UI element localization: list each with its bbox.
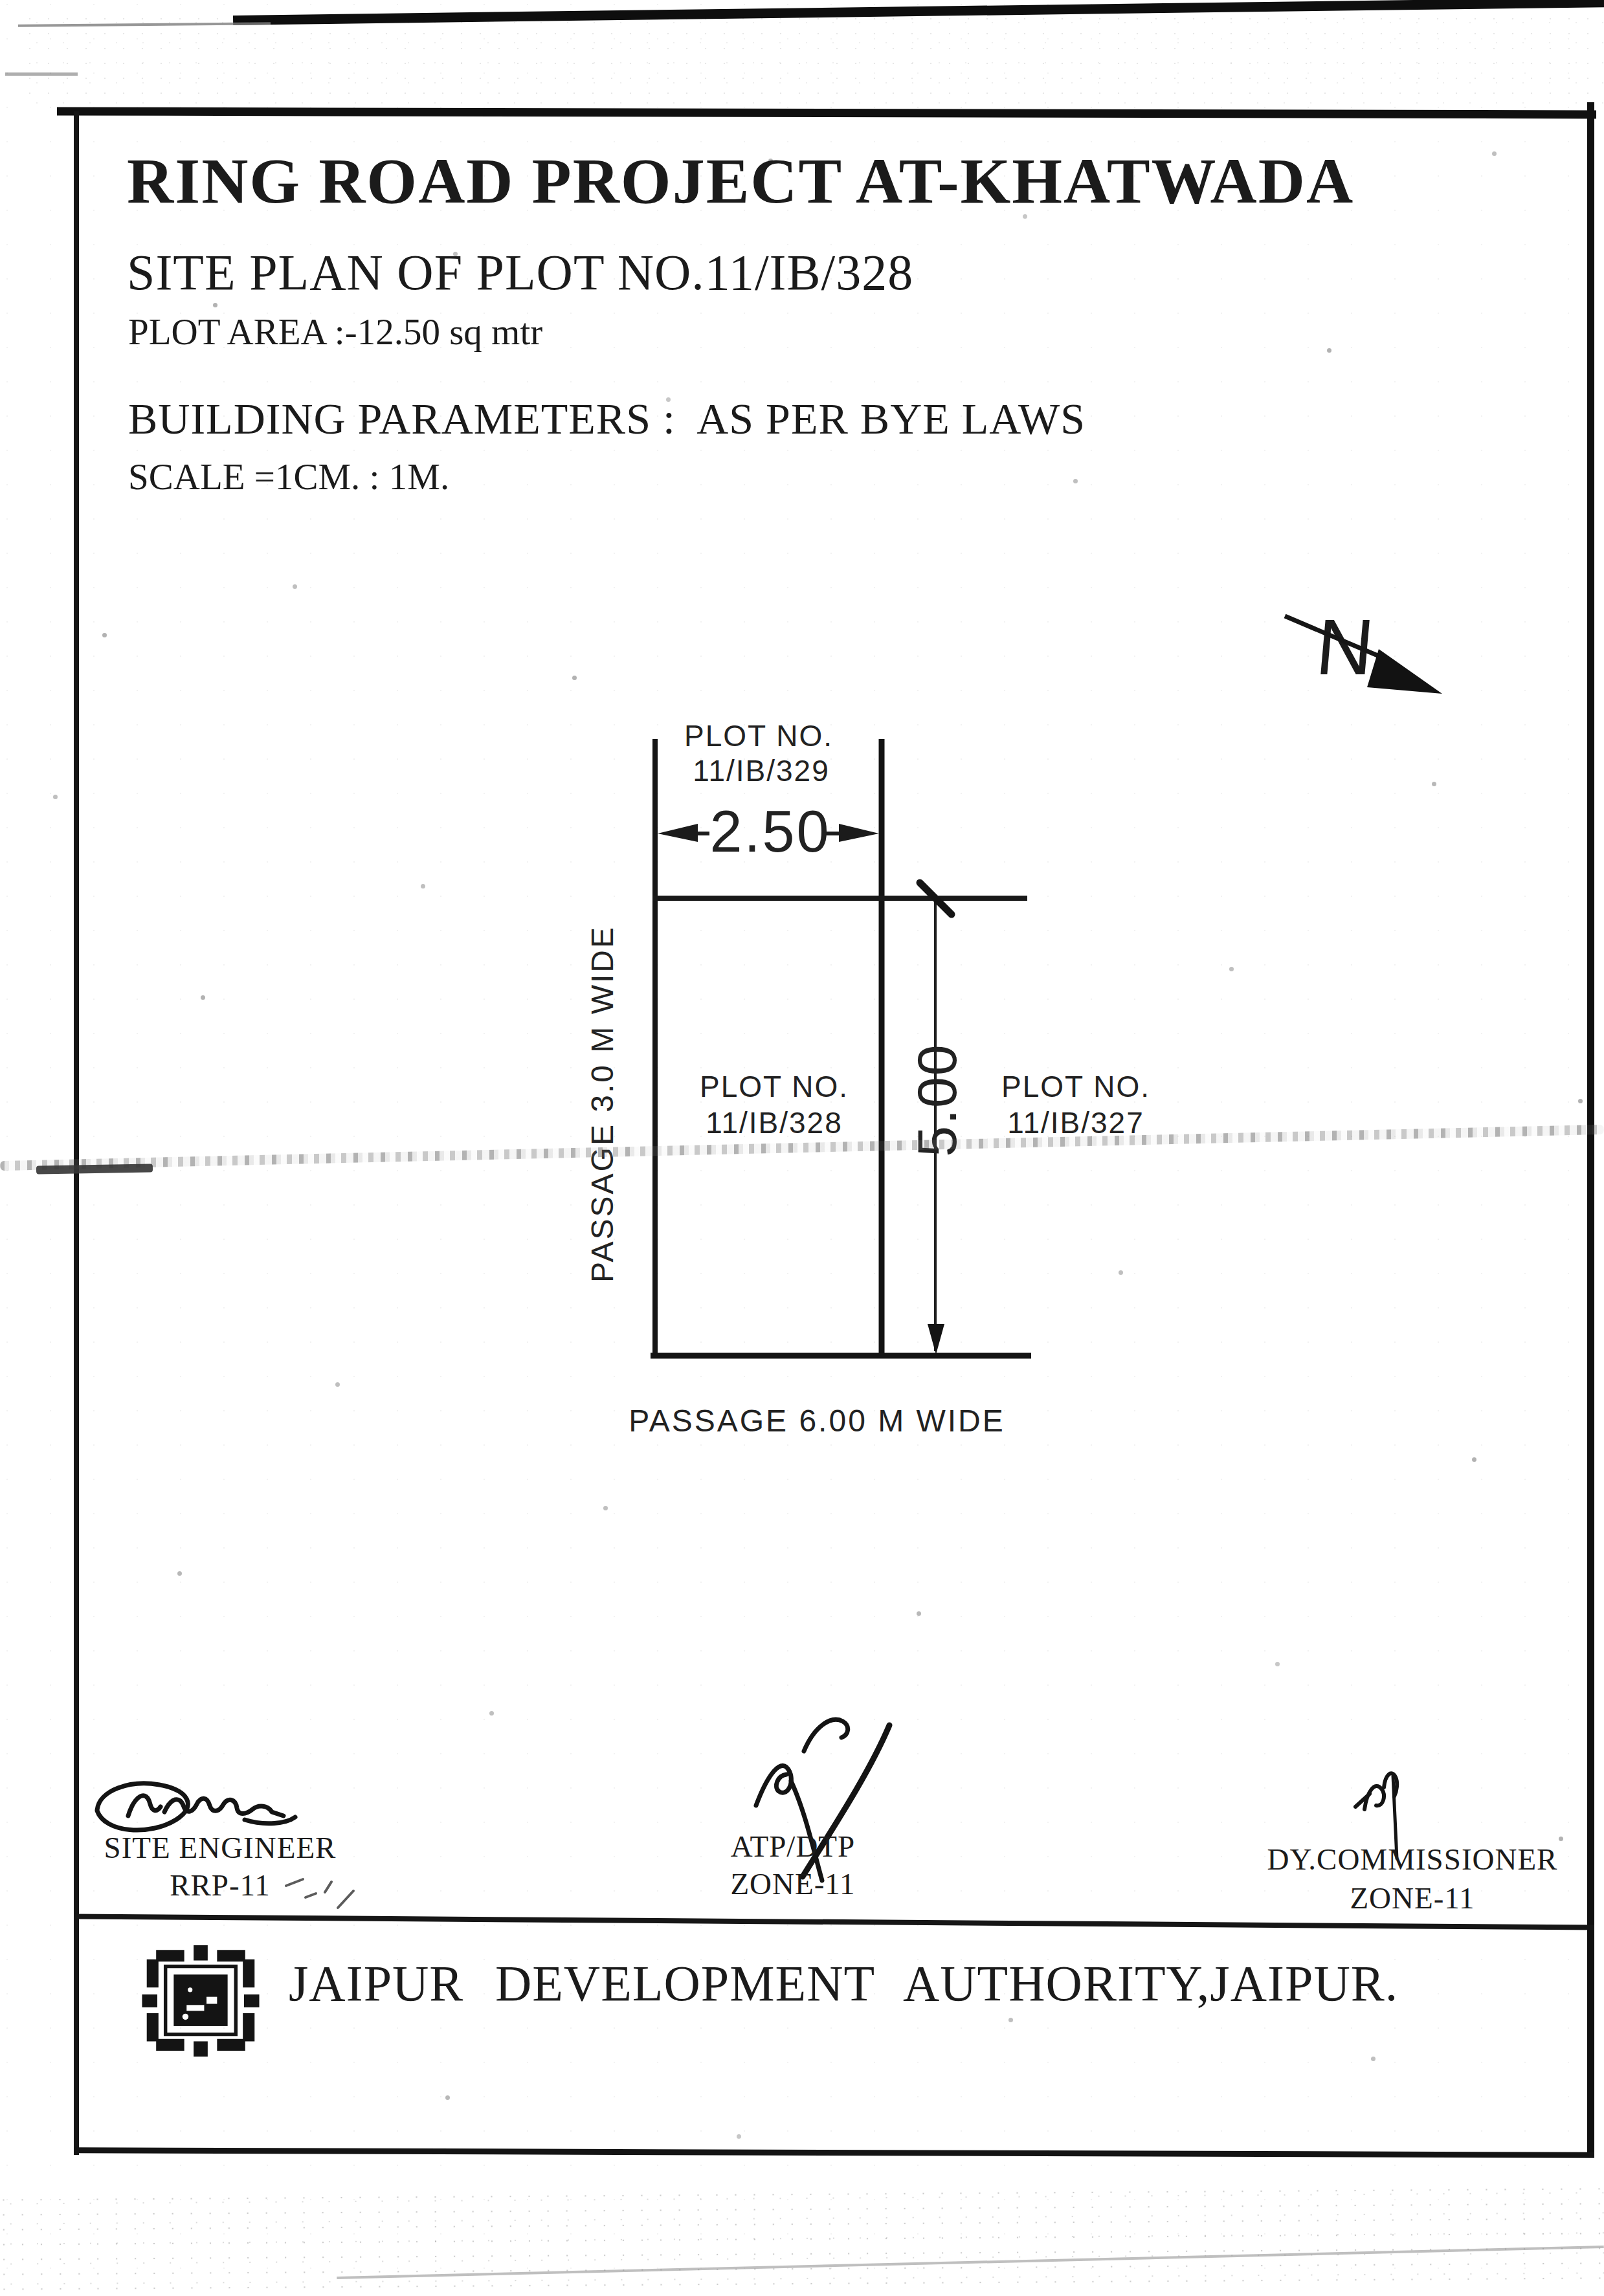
plot-329-label-line2: 11/IB/329 (693, 753, 830, 788)
plot-327-label-line1: PLOT NO. (1001, 1069, 1150, 1104)
footer-separator-line (74, 1914, 1594, 1930)
passage-bottom-label: PASSAGE 6.00 M WIDE (629, 1403, 1005, 1439)
scale-line: SCALE =1CM. : 1M. (128, 456, 449, 498)
signature-unit-rrp-11: RRP-11 (91, 1868, 350, 1903)
jda-logo-icon (141, 1945, 260, 2057)
scan-smudge-streak-left (36, 1164, 153, 1174)
signature-unit-zone-11-mid: ZONE-11 (663, 1866, 922, 1901)
passage-left-label: PASSAGE 3.0 M WIDE (585, 925, 620, 1283)
scan-noise-top (26, 16, 1604, 106)
plot-328-label-line1: PLOT NO. (700, 1069, 849, 1104)
width-dimension-value: 2.50 (709, 799, 830, 865)
paper-speckles (0, 0, 2, 2)
north-label: N (1313, 602, 1377, 692)
document-subtitle: SITE PLAN OF PLOT NO.11/IB/328 (127, 243, 913, 302)
building-parameters-line: BUILDING PARAMETERS : AS PER BYE LAWS (128, 393, 1086, 445)
plot-329-label-line1: PLOT NO. (684, 718, 833, 753)
scanned-site-plan-document: RING ROAD PROJECT AT-KHATWADA SITE PLAN … (0, 0, 1604, 2296)
scan-noise-bottom (0, 2185, 1604, 2296)
frame-border-left (74, 111, 79, 2155)
signature-role-site-engineer: SITE ENGINEER (91, 1830, 350, 1865)
plot-328-label-line2: 11/IB/328 (706, 1105, 843, 1140)
frame-border-top (57, 107, 1596, 119)
signature-unit-zone-11-right: ZONE-11 (1264, 1881, 1561, 1915)
site-engineer-signature-scribble (97, 1783, 295, 1830)
authority-name: JAIPUR DEVELOPMENT AUTHORITY,JAIPUR. (289, 1954, 1398, 2013)
signature-role-atp-dtp: ATP/DTP (663, 1829, 922, 1864)
signature-role-dy-commissioner: DY.COMMISSIONER (1264, 1842, 1561, 1877)
plot-area-line: PLOT AREA :-12.50 sq mtr (128, 311, 542, 353)
document-title: RING ROAD PROJECT AT-KHATWADA (127, 144, 1354, 218)
frame-border-bottom (74, 2147, 1594, 2158)
